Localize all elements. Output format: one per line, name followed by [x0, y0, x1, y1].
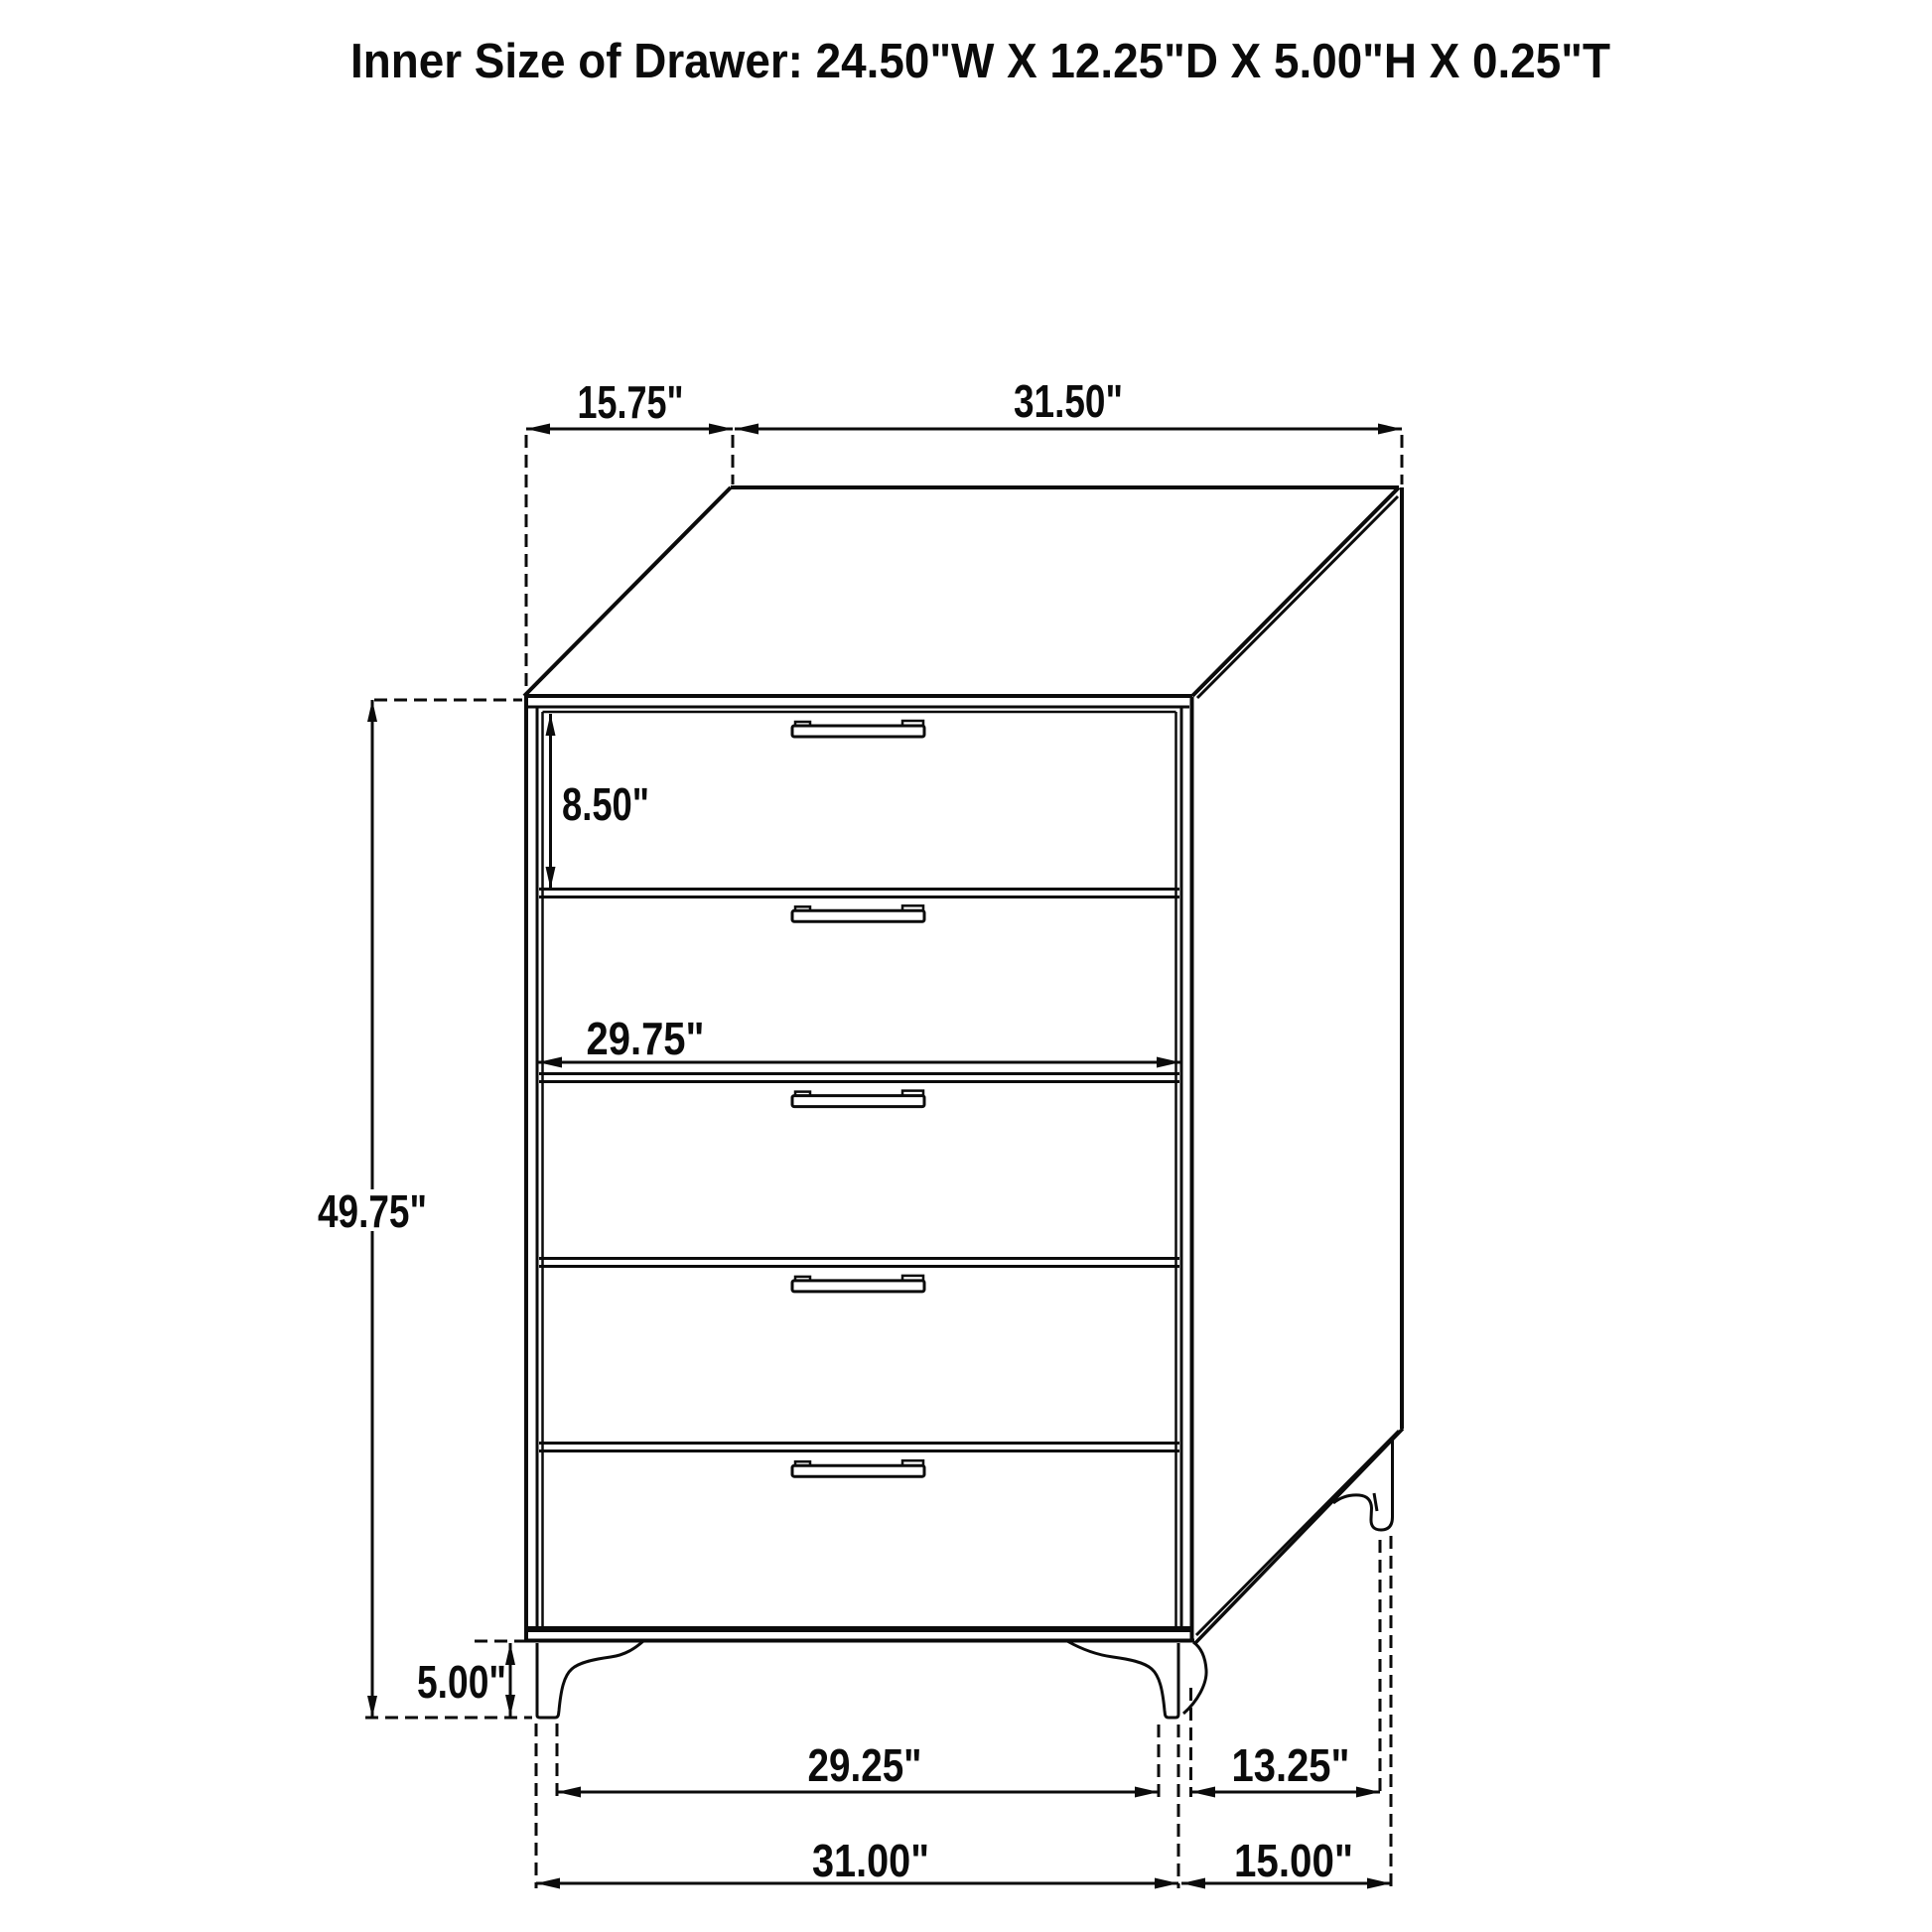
svg-text:8.50": 8.50"	[562, 778, 649, 830]
svg-text:15.00": 15.00"	[1234, 1835, 1353, 1886]
svg-text:15.75": 15.75"	[578, 376, 684, 428]
svg-text:49.75": 49.75"	[318, 1185, 427, 1237]
svg-text:29.25": 29.25"	[808, 1739, 922, 1791]
svg-text:13.25": 13.25"	[1232, 1739, 1350, 1791]
svg-text:Inner Size of Drawer: 24.50"W: Inner Size of Drawer: 24.50"W X 12.25"D …	[350, 35, 1610, 88]
svg-text:31.00": 31.00"	[812, 1835, 929, 1886]
svg-text:31.50": 31.50"	[1014, 375, 1123, 427]
svg-text:5.00": 5.00"	[417, 1656, 506, 1708]
svg-text:29.75": 29.75"	[587, 1013, 705, 1064]
